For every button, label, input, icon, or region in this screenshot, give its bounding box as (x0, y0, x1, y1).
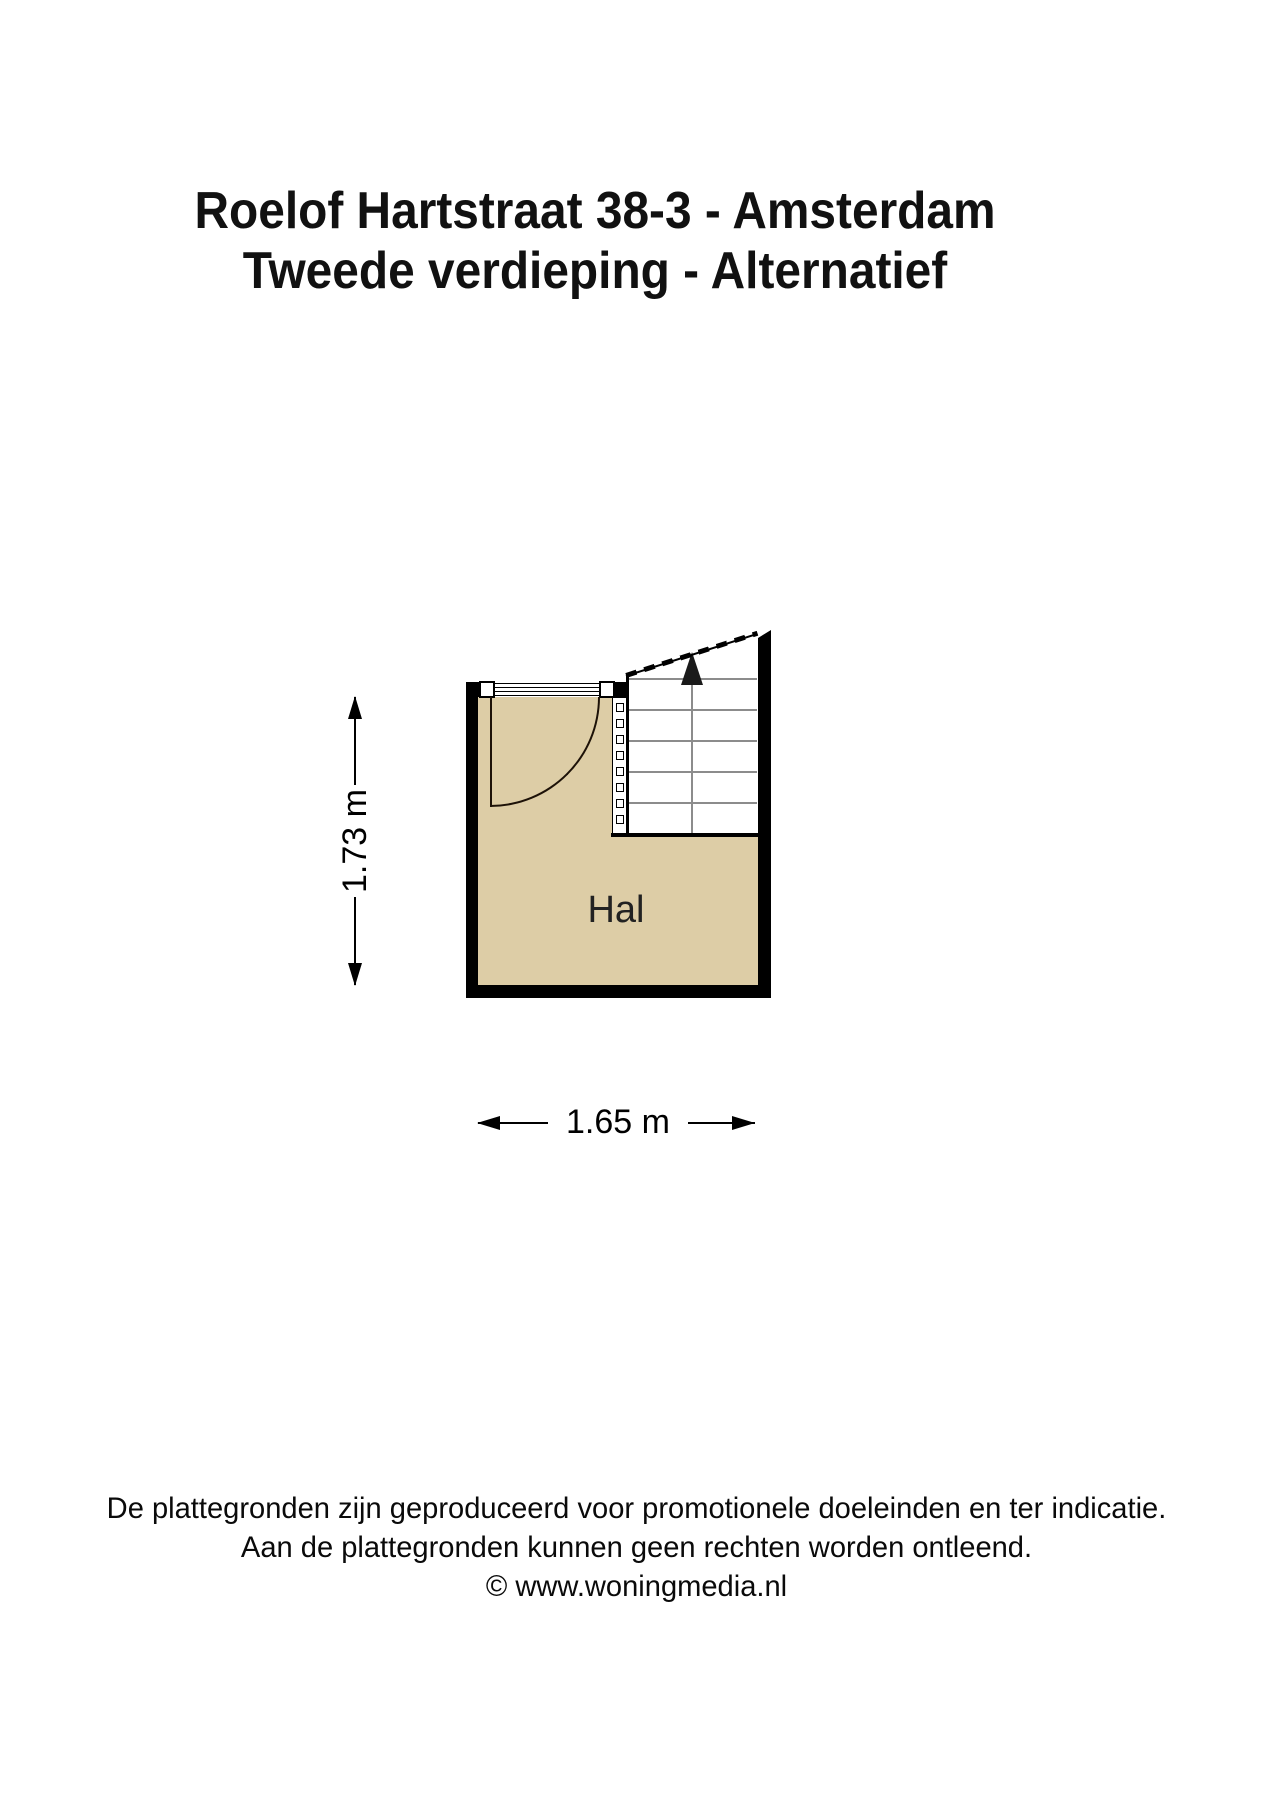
baluster (616, 799, 624, 808)
baluster (616, 703, 624, 712)
door-lintel-line (495, 691, 599, 693)
baluster (616, 719, 624, 728)
baluster (616, 751, 624, 760)
stair-tread (629, 709, 757, 711)
wall-block (614, 682, 628, 698)
footer-line: De plattegronden zijn geproduceerd voor … (19, 1489, 1254, 1528)
dimension-arrow-right-icon (732, 1116, 755, 1130)
dimension-height-label: 1.73 m (337, 785, 373, 897)
baluster (616, 783, 624, 792)
door-post-right (599, 681, 615, 698)
footer-disclaimer: De plattegronden zijn geproduceerd voor … (19, 1489, 1254, 1606)
door-lintel-line (495, 687, 599, 689)
page-title: Roelof Hartstraat 38-3 - Amsterdam Tweed… (48, 181, 1143, 301)
footer-line: Aan de plattegronden kunnen geen rechten… (19, 1528, 1254, 1567)
dimension-arrow-up-icon (348, 696, 362, 719)
stair-left-edge (626, 675, 629, 836)
stair-tread (629, 771, 757, 773)
stair-bottom-edge (611, 833, 758, 837)
baluster (616, 767, 624, 776)
room-label: Hal (566, 888, 666, 932)
dimension-arrow-left-icon (477, 1116, 500, 1130)
stair-railing (612, 698, 626, 834)
dimension-width-label: 1.65 m (548, 1103, 688, 1141)
baluster (616, 815, 624, 824)
page-title-line2: Tweede verdieping - Alternatief (48, 241, 1143, 301)
stair-tread (629, 740, 757, 742)
stair-tread (629, 802, 757, 804)
baluster (616, 735, 624, 744)
wall-left (466, 682, 478, 998)
dimension-arrow-down-icon (348, 963, 362, 986)
page-title-line1: Roelof Hartstraat 38-3 - Amsterdam (48, 181, 1143, 241)
footer-copyright: © www.woningmedia.nl (19, 1567, 1254, 1606)
wall-top-corner (466, 682, 480, 697)
door-post-left (479, 681, 495, 698)
door-lintel (494, 683, 600, 696)
wall-right (758, 630, 771, 998)
wall-bottom (466, 985, 771, 998)
